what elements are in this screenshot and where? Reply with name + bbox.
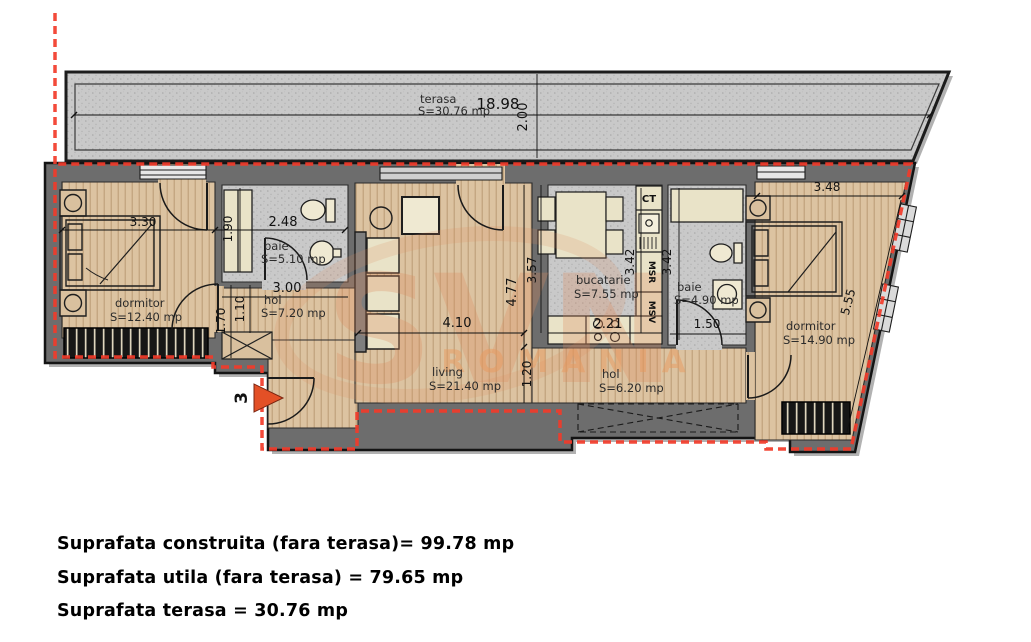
wardrobe-dormitor-1 bbox=[64, 328, 208, 358]
summary-line-terasa: Suprafata terasa = 30.76 mp bbox=[57, 601, 348, 621]
window-living-top bbox=[380, 167, 502, 180]
hol2-name: hol bbox=[602, 367, 620, 381]
dim-living-depth: 4.77 bbox=[505, 278, 520, 307]
dim-dorm2-width: 3.48 bbox=[814, 180, 841, 194]
dim-kitchen-side: 3.57 bbox=[525, 257, 539, 284]
wardrobe-dormitor-2 bbox=[782, 402, 850, 434]
label-msr: MSR bbox=[646, 261, 656, 283]
dim-kitchen-depth: 3.42 bbox=[623, 249, 637, 276]
hol2-area: S=6.20 mp bbox=[599, 381, 664, 395]
terrace bbox=[66, 72, 949, 161]
baie2-name: baie bbox=[677, 280, 702, 294]
baie2-area: S=4.90 mp bbox=[674, 293, 739, 307]
dim-baie1-width: 2.48 bbox=[269, 215, 298, 230]
dim-hol1-width: 3.00 bbox=[273, 281, 302, 296]
dim-hol1-d2: 1.70 bbox=[214, 308, 228, 335]
dim-baie1-depth: 1.90 bbox=[221, 216, 235, 243]
summary-line-construita: Suprafata construita (fara terasa)= 99.7… bbox=[57, 534, 514, 554]
window-dormitor1-top bbox=[140, 165, 206, 179]
label-ct: CT bbox=[642, 194, 656, 205]
entrance-number-label: 3 bbox=[232, 392, 252, 404]
watermark-sub: ROMANIA bbox=[441, 344, 699, 380]
dim-living-width: 4.10 bbox=[443, 316, 472, 331]
dim-terrace-length: 18.98 bbox=[477, 95, 520, 113]
dim-terrace-depth: 2.00 bbox=[516, 103, 531, 132]
dim-baie2-depth: 3.42 bbox=[660, 249, 674, 276]
dormitor1-area: S=12.40 mp bbox=[110, 310, 182, 324]
baie1-area: S=5.10 mp bbox=[261, 252, 326, 266]
living-name: living bbox=[432, 365, 463, 379]
window-dormitor2-top bbox=[757, 166, 805, 179]
summary-line-utila: Suprafata utila (fara terasa) = 79.65 mp bbox=[57, 568, 463, 588]
baie1-name: baie bbox=[264, 239, 289, 253]
dormitor2-name: dormitor bbox=[786, 319, 836, 333]
living-area: S=21.40 mp bbox=[429, 379, 501, 393]
shaft-box bbox=[222, 332, 272, 359]
dim-kitchen-width: 2.21 bbox=[594, 317, 623, 332]
label-msv: MSV bbox=[646, 301, 656, 323]
bucatarie-area: S=7.55 mp bbox=[574, 287, 639, 301]
hol1-area: S=7.20 mp bbox=[261, 306, 326, 320]
dim-dorm1-width: 3.30 bbox=[130, 215, 157, 229]
dim-living-d2: 1.20 bbox=[520, 361, 534, 388]
dormitor1-name: dormitor bbox=[115, 296, 165, 310]
dormitor2-area: S=14.90 mp bbox=[783, 333, 855, 347]
dim-baie2-width: 1.50 bbox=[694, 317, 721, 331]
floor-plan: SVN ROMANIA terasa S=30.76 mp 1 bbox=[0, 0, 1031, 520]
dim-hol1-d1: 1.10 bbox=[233, 296, 247, 323]
